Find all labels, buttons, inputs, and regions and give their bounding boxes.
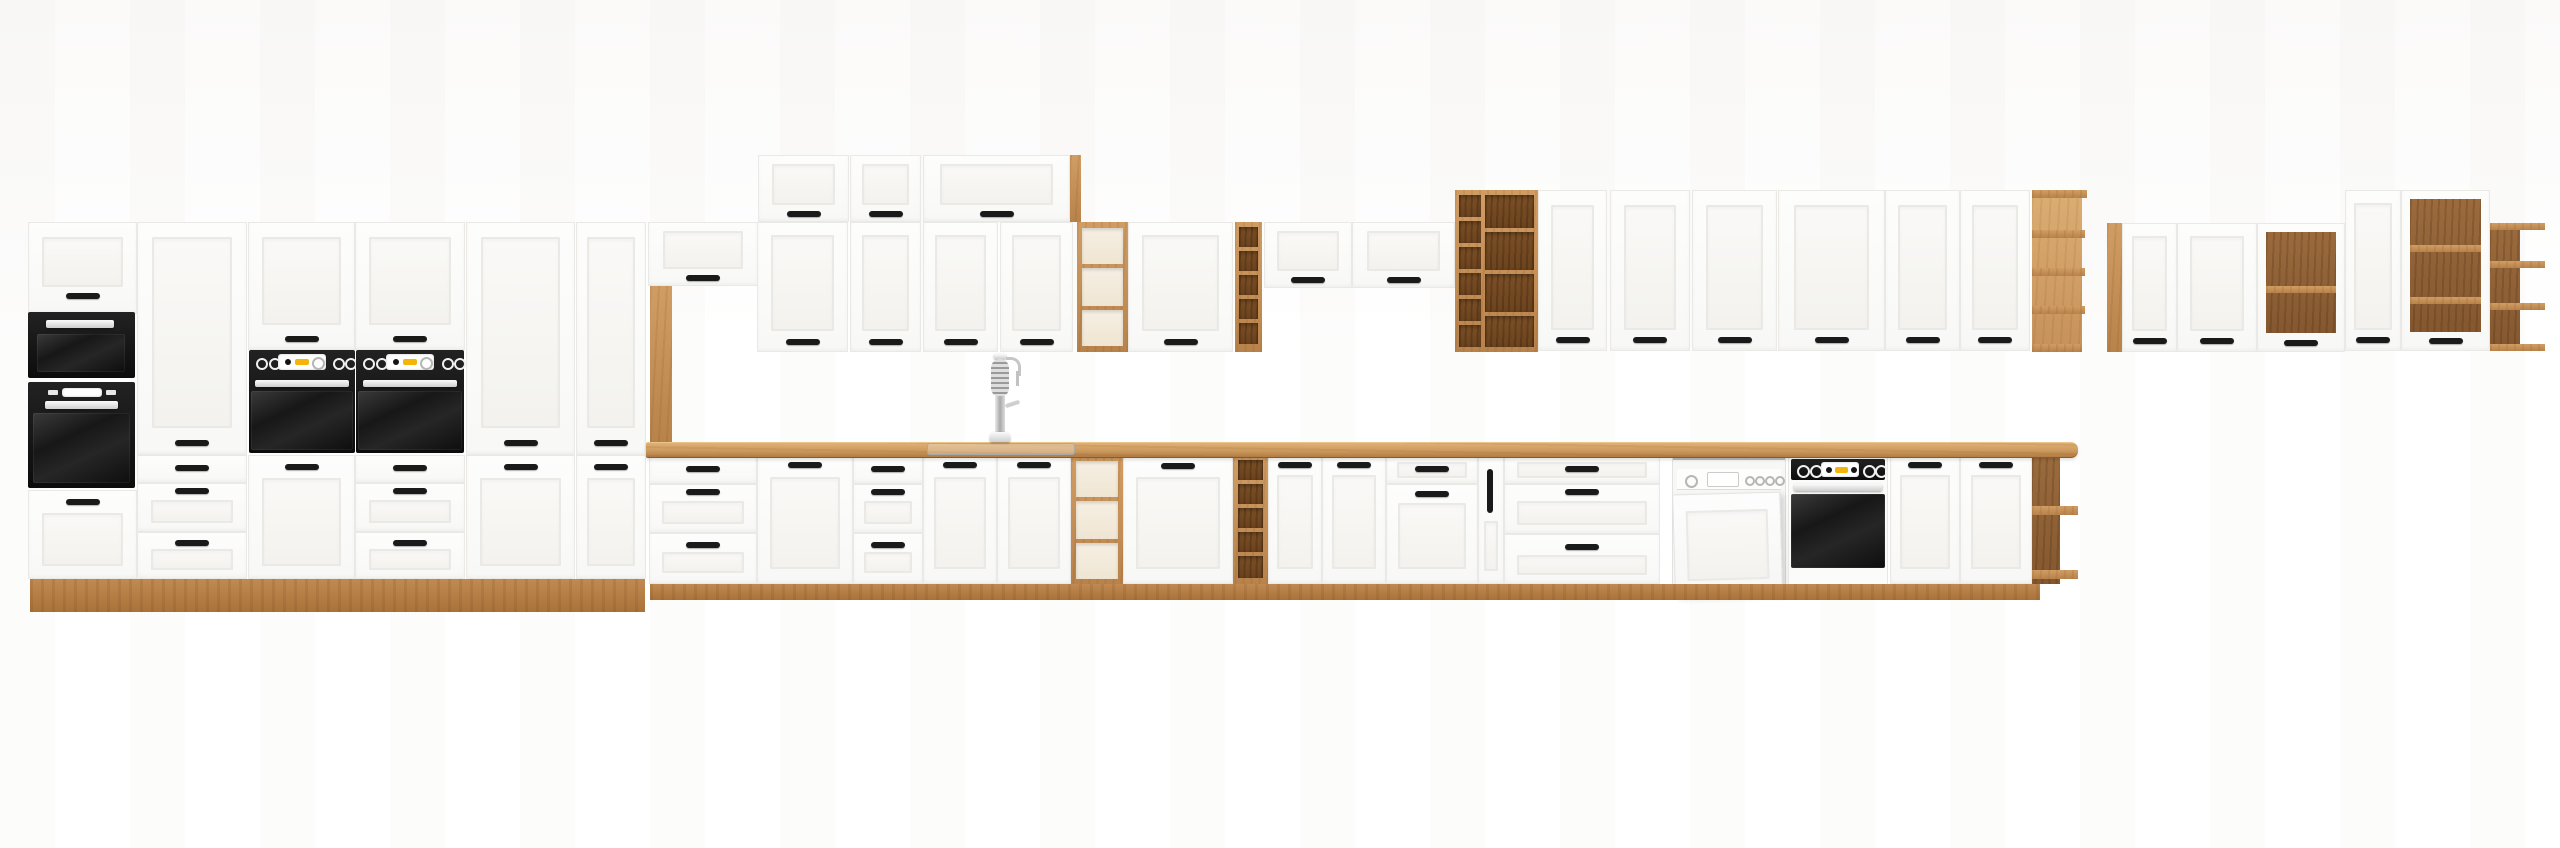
dishwasher-button: [1755, 476, 1765, 486]
door-frame: [1142, 235, 1219, 331]
tall-col-f-bottom-door: [576, 455, 646, 579]
drawer-frame: [864, 552, 912, 573]
top-row-flip-door-2: [850, 155, 921, 222]
door-frame: [1367, 231, 1440, 271]
door-frame: [1332, 475, 1376, 569]
drawer-frame: [151, 549, 233, 570]
drawer-frame: [662, 552, 744, 573]
door-frame: [935, 235, 986, 331]
microwave-handle-bar: [46, 320, 114, 328]
door-handle: [1020, 339, 1054, 345]
door-handle: [504, 464, 538, 470]
dishwasher-control-panel: [1677, 469, 1781, 490]
door-handle: [1633, 337, 1667, 343]
oven-control-panel: [1791, 459, 1885, 480]
wall-open-shelf: [1077, 222, 1128, 352]
door-frame: [1277, 475, 1313, 569]
oven-display-yellow: [295, 359, 309, 365]
door-frame: [663, 231, 743, 269]
door-frame: [480, 478, 561, 566]
shelf-board: [2032, 190, 2087, 198]
shelf-board: [2032, 506, 2078, 515]
door-handle: [786, 339, 820, 345]
door-frame: [1686, 509, 1770, 581]
base-drawer-a3: [649, 533, 757, 584]
wall-cabinet-over-counter: [648, 222, 758, 286]
rack-cell: [1238, 508, 1263, 528]
drawer-frame: [369, 500, 451, 523]
drawer-handle: [393, 488, 427, 494]
base-drawer-b3: [853, 533, 923, 584]
shelf-board: [2032, 344, 2082, 352]
door-frame: [262, 478, 341, 566]
door-handle: [1815, 337, 1849, 343]
shelf-board: [2490, 261, 2545, 268]
tall-col-b-drawer-1: [137, 455, 247, 483]
wall-door-6: [1960, 190, 2030, 351]
door-handle: [1337, 462, 1371, 468]
base-door-b: [1268, 456, 1322, 584]
tall-col-b-drawer-3: [137, 532, 247, 579]
drawer-handle: [175, 488, 209, 494]
shelf-board: [2410, 297, 2481, 304]
wall-door-1: [1538, 190, 1607, 351]
oven-handle-bar: [1794, 484, 1882, 491]
base-drawer-b1: [853, 456, 923, 484]
base-door-c: [1322, 456, 1386, 584]
drawer-frame: [151, 500, 233, 523]
shelf-cell: [1459, 195, 1481, 217]
top-row-flip-door-1: [758, 155, 849, 222]
oven-window: [251, 391, 353, 450]
door-handle: [1164, 339, 1198, 345]
oven-knob: [1875, 465, 1888, 478]
door-frame: [862, 235, 909, 331]
door-frame: [587, 478, 635, 566]
oven-knob: [442, 358, 454, 370]
oven-window: [358, 391, 462, 450]
door-frame: [42, 237, 123, 287]
top-row-flip-door-3: [923, 155, 1070, 222]
door-handle: [1718, 337, 1752, 343]
door-handle: [943, 462, 977, 468]
door-frame: [2354, 203, 2392, 330]
mid-wall-door-2: [850, 222, 921, 352]
shelf-board: [2410, 245, 2481, 252]
shelf-cell: [1076, 543, 1118, 579]
door-handle: [504, 440, 538, 446]
shelf-board: [2490, 223, 2545, 230]
shelf-cell: [1459, 247, 1481, 269]
drawer-handle: [686, 466, 720, 472]
mid-wall-door-1: [757, 222, 848, 352]
base-door-d: [1890, 456, 1960, 584]
base-combo-drawer: [1386, 456, 1478, 484]
oven-display: [62, 388, 102, 397]
oven-knob: [454, 358, 466, 370]
base-open-shelf: [1071, 456, 1123, 584]
door-frame: [1624, 205, 1676, 330]
rack-cell: [1239, 275, 1258, 295]
cargo-handle: [1487, 469, 1493, 513]
tall-col-e-top-door: [466, 222, 575, 455]
door-handle: [285, 336, 319, 342]
wall-door-3: [1692, 190, 1777, 351]
oven-handle-bar: [45, 401, 118, 409]
drawer-frame: [1517, 501, 1647, 525]
door-frame: [772, 164, 835, 205]
wall-end-shelf: [2032, 190, 2082, 352]
kitchen-product-image: [0, 0, 2560, 848]
base-drawer-a2: [649, 484, 757, 533]
oven-knob: [256, 358, 268, 370]
wood-side-panel: [1070, 155, 1081, 222]
faucet-base: [990, 432, 1010, 442]
oven-display-segment: [48, 390, 58, 395]
base-drawer-a1: [649, 456, 757, 484]
door-handle: [869, 339, 903, 345]
door-frame: [934, 477, 986, 569]
base-drawer-c2: [1504, 484, 1660, 534]
door-handle: [980, 211, 1014, 217]
shelf-back-panel: [2490, 223, 2520, 351]
base-drawer-b2: [853, 484, 923, 533]
drawer-frame: [369, 549, 451, 570]
oven-column-d: [356, 350, 464, 453]
dishwasher-dispenser: [1707, 472, 1739, 487]
sink-base-door-2: [997, 456, 1071, 584]
shelf-cell: [1485, 195, 1534, 228]
faucet-lever: [1005, 400, 1021, 408]
door-handle: [66, 499, 100, 505]
door-handle: [66, 293, 100, 299]
oven-display-ring: [420, 357, 433, 370]
door-handle: [2200, 338, 2234, 344]
dishwasher-front-panel: [1672, 492, 1783, 597]
drawer-handle: [1565, 489, 1599, 495]
drawer-frame: [864, 501, 912, 524]
shelf-cell: [1082, 228, 1123, 264]
wood-support-panel: [650, 286, 672, 443]
door-frame: [862, 164, 909, 205]
door-frame: [2190, 236, 2244, 331]
rack-cell: [1239, 251, 1258, 271]
door-handle: [1979, 462, 2013, 468]
door-handle: [788, 462, 822, 468]
sink: [927, 443, 1075, 455]
tall-col-e-bottom-door: [466, 455, 575, 579]
oven-display-dot: [1826, 467, 1832, 473]
door-frame: [42, 513, 123, 566]
tall-col-f-top-door: [576, 222, 646, 455]
door-handle: [1556, 337, 1590, 343]
base-cargo-unit: [1478, 456, 1504, 584]
door-frame: [1012, 235, 1061, 331]
base-drawer-c3: [1504, 534, 1660, 584]
rack-cell: [1238, 532, 1263, 552]
door-frame: [770, 477, 840, 569]
right-display-cabinet-2: [2401, 190, 2490, 351]
door-frame: [1971, 475, 2021, 569]
shelf-board: [2032, 570, 2078, 579]
door-handle: [594, 440, 628, 446]
shelf-cell: [1485, 316, 1534, 347]
shelf-board: [2266, 286, 2336, 293]
oven-handle-bar: [363, 380, 457, 387]
right-wall-door-1: [2122, 223, 2177, 352]
door-handle: [393, 336, 427, 342]
drawer-handle: [1415, 466, 1449, 472]
dishwasher: [1672, 456, 1786, 598]
drawer-handle: [871, 489, 905, 495]
wood-side-panel-right: [2107, 223, 2122, 352]
tall-col-d-drawer-1: [355, 455, 465, 483]
base-bottle-rack: [1233, 456, 1268, 584]
door-frame: [940, 164, 1053, 205]
wall-door-4: [1778, 190, 1885, 351]
wall-flip-cabinet-1: [1264, 222, 1352, 288]
tall-col-a-bottom-door: [28, 490, 137, 579]
door-handle: [944, 339, 978, 345]
base-door-a: [757, 456, 853, 584]
oven-display-yellow: [1835, 467, 1848, 473]
base-wide-door: [1123, 456, 1233, 584]
oven-knob: [1797, 465, 1810, 478]
oven-handle-bar: [255, 380, 349, 387]
shelf-board: [2490, 344, 2545, 351]
dishwasher-button: [1745, 476, 1755, 486]
tall-col-d-top-door: [355, 222, 465, 350]
right-corner-shelf: [2490, 223, 2545, 351]
door-frame: [1898, 205, 1947, 330]
display-interior: [2410, 199, 2481, 332]
door-handle: [1978, 337, 2012, 343]
rack-cell: [1238, 556, 1263, 578]
rack-cell: [1239, 323, 1258, 344]
drawer-handle: [871, 542, 905, 548]
door-handle: [2429, 338, 2463, 344]
rack-cell: [1239, 299, 1258, 319]
rack-cell: [1238, 484, 1263, 504]
door-frame: [1277, 231, 1339, 271]
shelf-board: [2032, 230, 2085, 238]
oven-column-c: [249, 350, 355, 453]
tall-col-b-drawer-2: [137, 483, 247, 532]
oven-display-dot: [285, 359, 291, 365]
tall-col-d-drawer-3: [355, 532, 465, 579]
drawer-handle: [393, 465, 427, 471]
door-frame: [1706, 205, 1763, 330]
sink-base-door-1: [923, 456, 997, 584]
door-frame: [1136, 477, 1220, 569]
door-frame: [1900, 475, 1950, 569]
tall-col-a-top-door: [28, 222, 137, 314]
wall-flip-cabinet-2: [1352, 222, 1455, 288]
oven-window: [1791, 494, 1885, 568]
oven-display-dot: [1851, 467, 1857, 473]
wall-door-2: [1610, 190, 1690, 351]
oven-display-ring: [312, 357, 325, 370]
door-frame: [1794, 205, 1869, 330]
dishwasher-button: [1765, 476, 1775, 486]
door-frame: [369, 237, 451, 325]
shelf-cell: [1459, 299, 1481, 321]
shelf-cell: [1459, 325, 1481, 347]
right-wall-door-2: [2177, 223, 2257, 352]
tall-col-b-door: [137, 222, 247, 455]
drawer-handle: [393, 540, 427, 546]
shelf-cell: [1459, 273, 1481, 295]
wall-bottle-rack: [1235, 222, 1262, 352]
door-handle: [1161, 463, 1195, 469]
door-handle: [1278, 462, 1312, 468]
door-frame: [152, 237, 232, 428]
door-handle: [2133, 338, 2167, 344]
right-tall-wall-door: [2345, 190, 2401, 351]
oven-knob: [333, 358, 345, 370]
door-handle: [2356, 337, 2390, 343]
door-handle: [686, 275, 720, 281]
mid-wall-door-4: [1000, 222, 1073, 352]
door-frame: [2132, 236, 2167, 331]
shelf-cell: [1082, 268, 1123, 306]
faucet-spout-tube: [1016, 371, 1019, 386]
shelf-board: [2032, 306, 2085, 314]
faucet-stem: [995, 396, 1005, 432]
oven-display: [278, 354, 326, 370]
drawer-frame: [1517, 555, 1647, 575]
door-handle: [1387, 277, 1421, 283]
oven-display-yellow: [403, 359, 417, 365]
display-interior: [2266, 232, 2336, 333]
drawer-handle: [175, 465, 209, 471]
shelf-cell: [1485, 274, 1534, 312]
microwave: [28, 312, 135, 378]
shelf-cell: [1082, 310, 1123, 346]
door-handle: [1017, 462, 1051, 468]
door-frame: [587, 237, 635, 428]
drawer-handle: [686, 542, 720, 548]
shelf-cell: [1076, 501, 1118, 539]
door-frame: [771, 235, 834, 331]
door-frame: [1398, 503, 1466, 569]
oven-knob: [363, 358, 375, 370]
wall-cabinet-sink-left: [1128, 222, 1233, 352]
rack-cell: [1239, 227, 1258, 247]
base-run-plinth: [650, 584, 2040, 600]
base-door-e: [1960, 456, 2032, 584]
door-frame: [1972, 205, 2018, 330]
oven-base-unit: [1788, 456, 1888, 586]
door-frame: [262, 237, 341, 325]
drawer-handle: [175, 540, 209, 546]
drawer-handle: [871, 466, 905, 472]
door-handle: [285, 464, 319, 470]
base-combo-door: [1386, 484, 1478, 584]
dishwasher-button: [1775, 476, 1785, 486]
shelf-back-panel: [2032, 456, 2060, 584]
oven-display-segment: [106, 390, 116, 395]
door-frame: [1551, 205, 1594, 330]
door-frame: [1484, 521, 1498, 571]
tall-col-d-drawer-2: [355, 483, 465, 532]
dishwasher-power-ring: [1685, 475, 1698, 488]
shelf-board: [2490, 303, 2545, 310]
door-handle: [594, 464, 628, 470]
drawer-handle: [1565, 544, 1599, 550]
rack-cell: [1238, 460, 1263, 480]
shelf-cell: [1076, 461, 1118, 497]
oven-display-dot: [393, 359, 399, 365]
base-drawer-c1: [1504, 456, 1660, 484]
faucet: [970, 354, 1030, 444]
drawer-handle: [1565, 466, 1599, 472]
door-handle: [787, 211, 821, 217]
shelf-board: [2032, 268, 2085, 276]
mid-wall-door-3: [923, 222, 998, 352]
shelf-cell: [1485, 232, 1534, 270]
tall-col-c-bottom-door: [248, 455, 355, 579]
door-handle: [1908, 462, 1942, 468]
door-handle: [869, 211, 903, 217]
oven-column-a: [28, 382, 135, 488]
base-end-shelf: [2032, 456, 2078, 584]
tall-col-c-top-door: [248, 222, 355, 350]
door-handle: [175, 440, 209, 446]
door-frame: [1008, 477, 1060, 569]
door-handle: [1291, 277, 1325, 283]
door-frame: [481, 237, 560, 428]
microwave-window: [37, 334, 125, 372]
door-handle: [2284, 340, 2318, 346]
oven-display: [1821, 462, 1859, 477]
wall-shelf-tower: [1455, 190, 1538, 352]
door-handle: [1906, 337, 1940, 343]
door-handle: [1415, 491, 1449, 497]
drawer-handle: [686, 489, 720, 495]
wall-door-5: [1885, 190, 1960, 351]
shelf-cell: [1459, 221, 1481, 243]
drawer-frame: [662, 501, 744, 524]
right-display-cabinet-1: [2257, 223, 2345, 352]
countertop: [646, 442, 2078, 458]
oven-window: [33, 413, 130, 483]
oven-display: [386, 354, 434, 370]
tall-block-plinth: [30, 579, 645, 612]
